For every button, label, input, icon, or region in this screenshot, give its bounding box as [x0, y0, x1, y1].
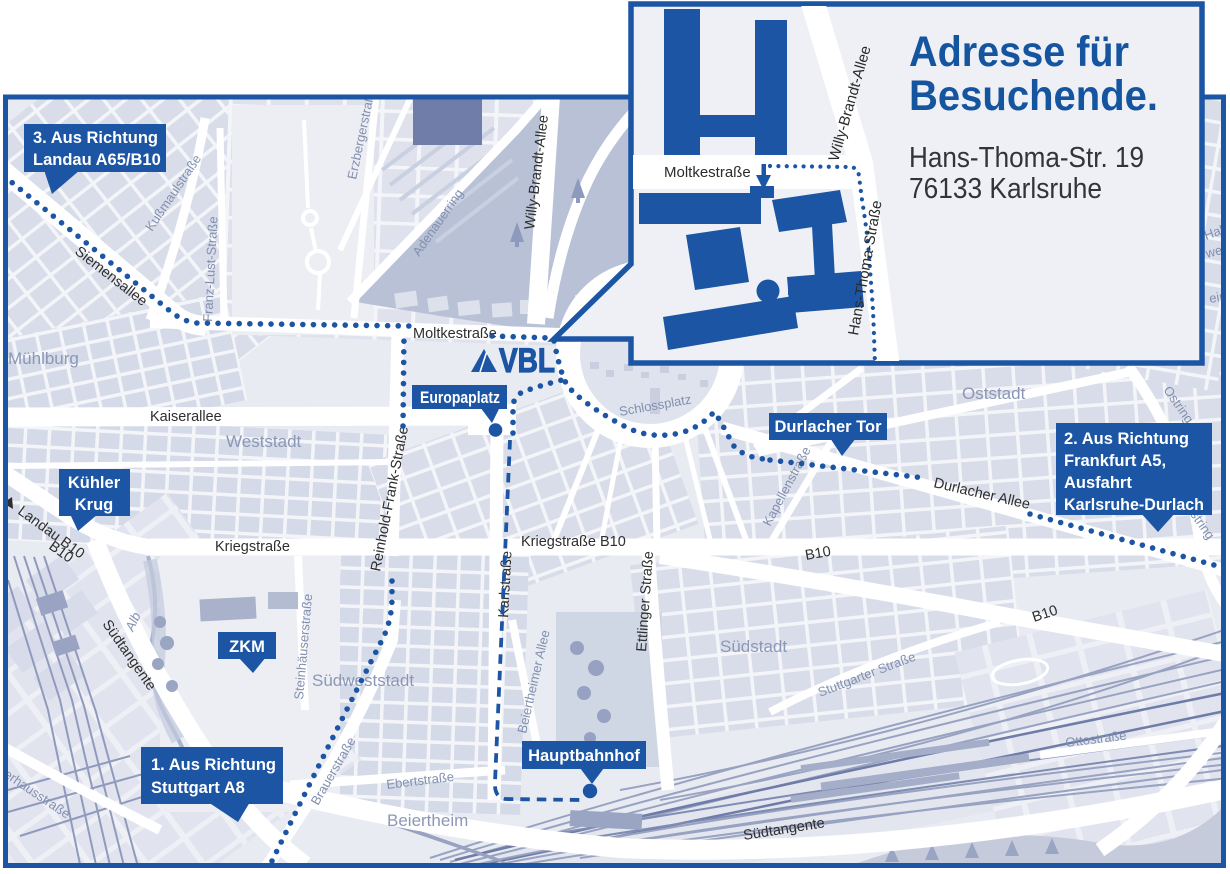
svg-text:Moltkestraße: Moltkestraße	[413, 326, 497, 342]
svg-text:Adresse für: Adresse für	[909, 28, 1129, 76]
svg-text:Kriegstraße: Kriegstraße	[215, 539, 290, 555]
svg-text:Mühlburg: Mühlburg	[8, 349, 79, 368]
svg-text:Frankfurt A5,: Frankfurt A5,	[1064, 452, 1166, 470]
svg-text:Stuttgart A8: Stuttgart A8	[151, 779, 245, 797]
svg-text:Weststadt: Weststadt	[226, 432, 302, 451]
svg-text:Oststadt: Oststadt	[962, 384, 1026, 403]
svg-text:Landau A65/B10: Landau A65/B10	[33, 151, 161, 169]
svg-text:VBL: VBL	[499, 342, 555, 380]
svg-text:Ausfahrt: Ausfahrt	[1064, 474, 1132, 492]
svg-text:1. Aus Richtung: 1. Aus Richtung	[151, 756, 276, 774]
svg-text:Europaplatz: Europaplatz	[420, 389, 500, 407]
svg-text:Krug: Krug	[75, 496, 114, 514]
svg-text:2. Aus Richtung: 2. Aus Richtung	[1064, 430, 1189, 448]
svg-text:Hauptbahnhof: Hauptbahnhof	[528, 747, 640, 765]
svg-text:ZKM: ZKM	[229, 638, 265, 656]
svg-text:Kriegstraße B10: Kriegstraße B10	[521, 534, 626, 550]
svg-text:Durlacher Tor: Durlacher Tor	[775, 418, 883, 436]
svg-text:Karlsruhe-Durlach: Karlsruhe-Durlach	[1064, 496, 1204, 514]
svg-text:Hans-Thoma-Str. 19: Hans-Thoma-Str. 19	[909, 142, 1144, 174]
svg-text:Kaiserallee: Kaiserallee	[150, 409, 222, 425]
svg-text:Moltkestraße: Moltkestraße	[664, 164, 751, 181]
svg-text:Kühler: Kühler	[68, 474, 121, 492]
svg-text:Südstadt: Südstadt	[720, 637, 787, 656]
svg-text:76133 Karlsruhe: 76133 Karlsruhe	[909, 173, 1102, 205]
svg-text:Beiertheim: Beiertheim	[387, 811, 468, 830]
svg-text:3. Aus Richtung: 3. Aus Richtung	[33, 129, 158, 147]
svg-text:Besuchende.: Besuchende.	[909, 72, 1158, 120]
